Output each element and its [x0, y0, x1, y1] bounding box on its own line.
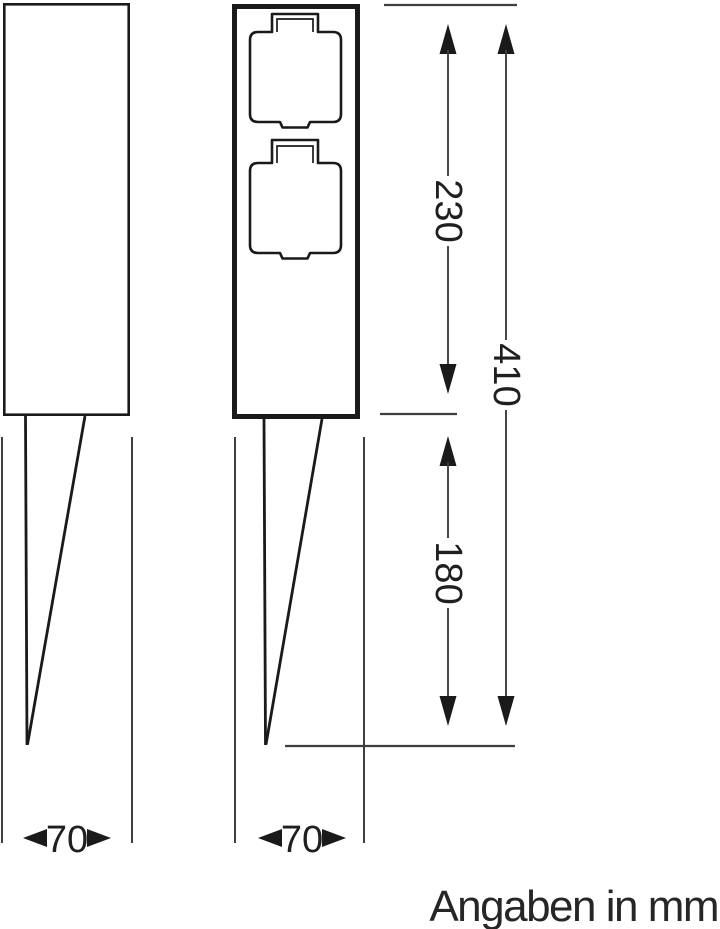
arrow-left-icon	[258, 829, 282, 847]
body-height-label: 230	[427, 179, 469, 242]
spike-socket-dimension-diagram: 70 70 230	[0, 0, 720, 929]
arrow-up-icon	[498, 24, 515, 54]
units-note: Angaben in mm	[429, 882, 718, 929]
dimension-230: 230	[427, 24, 469, 394]
side-width-label: 70	[46, 819, 88, 861]
arrow-right-icon	[322, 829, 346, 847]
dimension-180: 180	[427, 436, 469, 726]
dimension-410: 410	[485, 24, 527, 726]
front-spike-left-edge	[264, 419, 266, 745]
arrow-up-icon	[440, 24, 457, 54]
technical-drawing-canvas: 70 70 230	[0, 0, 720, 929]
front-width-label: 70	[281, 819, 323, 861]
arrow-down-icon	[440, 696, 457, 726]
front-width-dimension: 70	[258, 819, 346, 861]
arrow-left-icon	[23, 829, 47, 847]
side-width-dimension: 70	[23, 819, 111, 861]
arrow-up-icon	[440, 436, 457, 466]
side-view: 70	[2, 4, 132, 861]
front-spike-right-edge	[266, 419, 322, 745]
arrow-down-icon	[498, 696, 515, 726]
side-spike-left-edge	[26, 416, 28, 745]
side-view-body	[4, 4, 128, 414]
socket-cover-top	[250, 14, 341, 128]
spike-length-label: 180	[427, 541, 469, 604]
arrow-down-icon	[440, 364, 457, 394]
front-view: 70	[235, 7, 365, 862]
arrow-right-icon	[87, 829, 111, 847]
side-spike-right-edge	[28, 416, 86, 745]
total-height-label: 410	[485, 343, 527, 406]
